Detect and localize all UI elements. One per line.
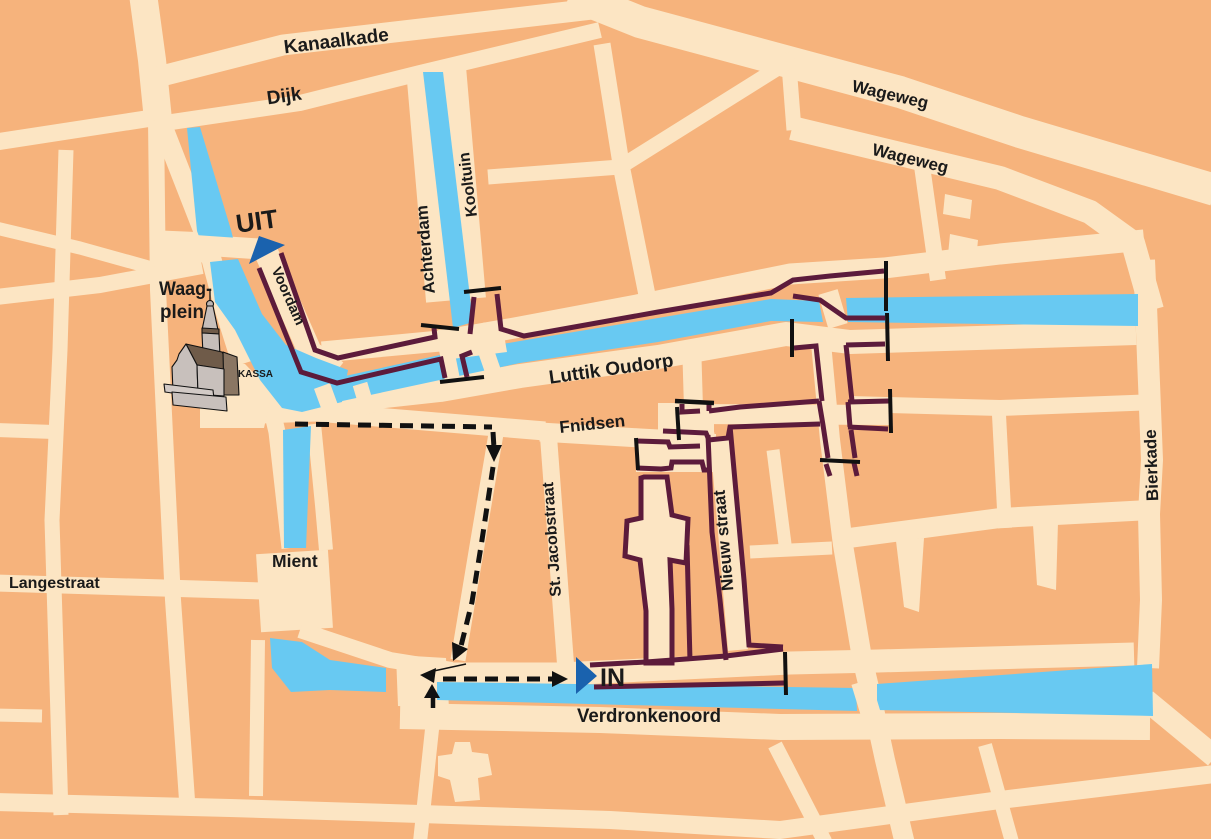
svg-text:UIT: UIT [234,203,280,239]
svg-text:plein: plein [160,302,204,323]
svg-text:Langestraat: Langestraat [9,575,100,592]
svg-text:KASSA: KASSA [238,369,273,380]
svg-text:IN: IN [600,664,625,692]
svg-text:Bierkade: Bierkade [1141,429,1162,501]
svg-text:Waag-: Waag- [159,279,212,300]
svg-text:Mient: Mient [272,551,318,571]
svg-text:Verdronkenoord: Verdronkenoord [577,706,721,727]
